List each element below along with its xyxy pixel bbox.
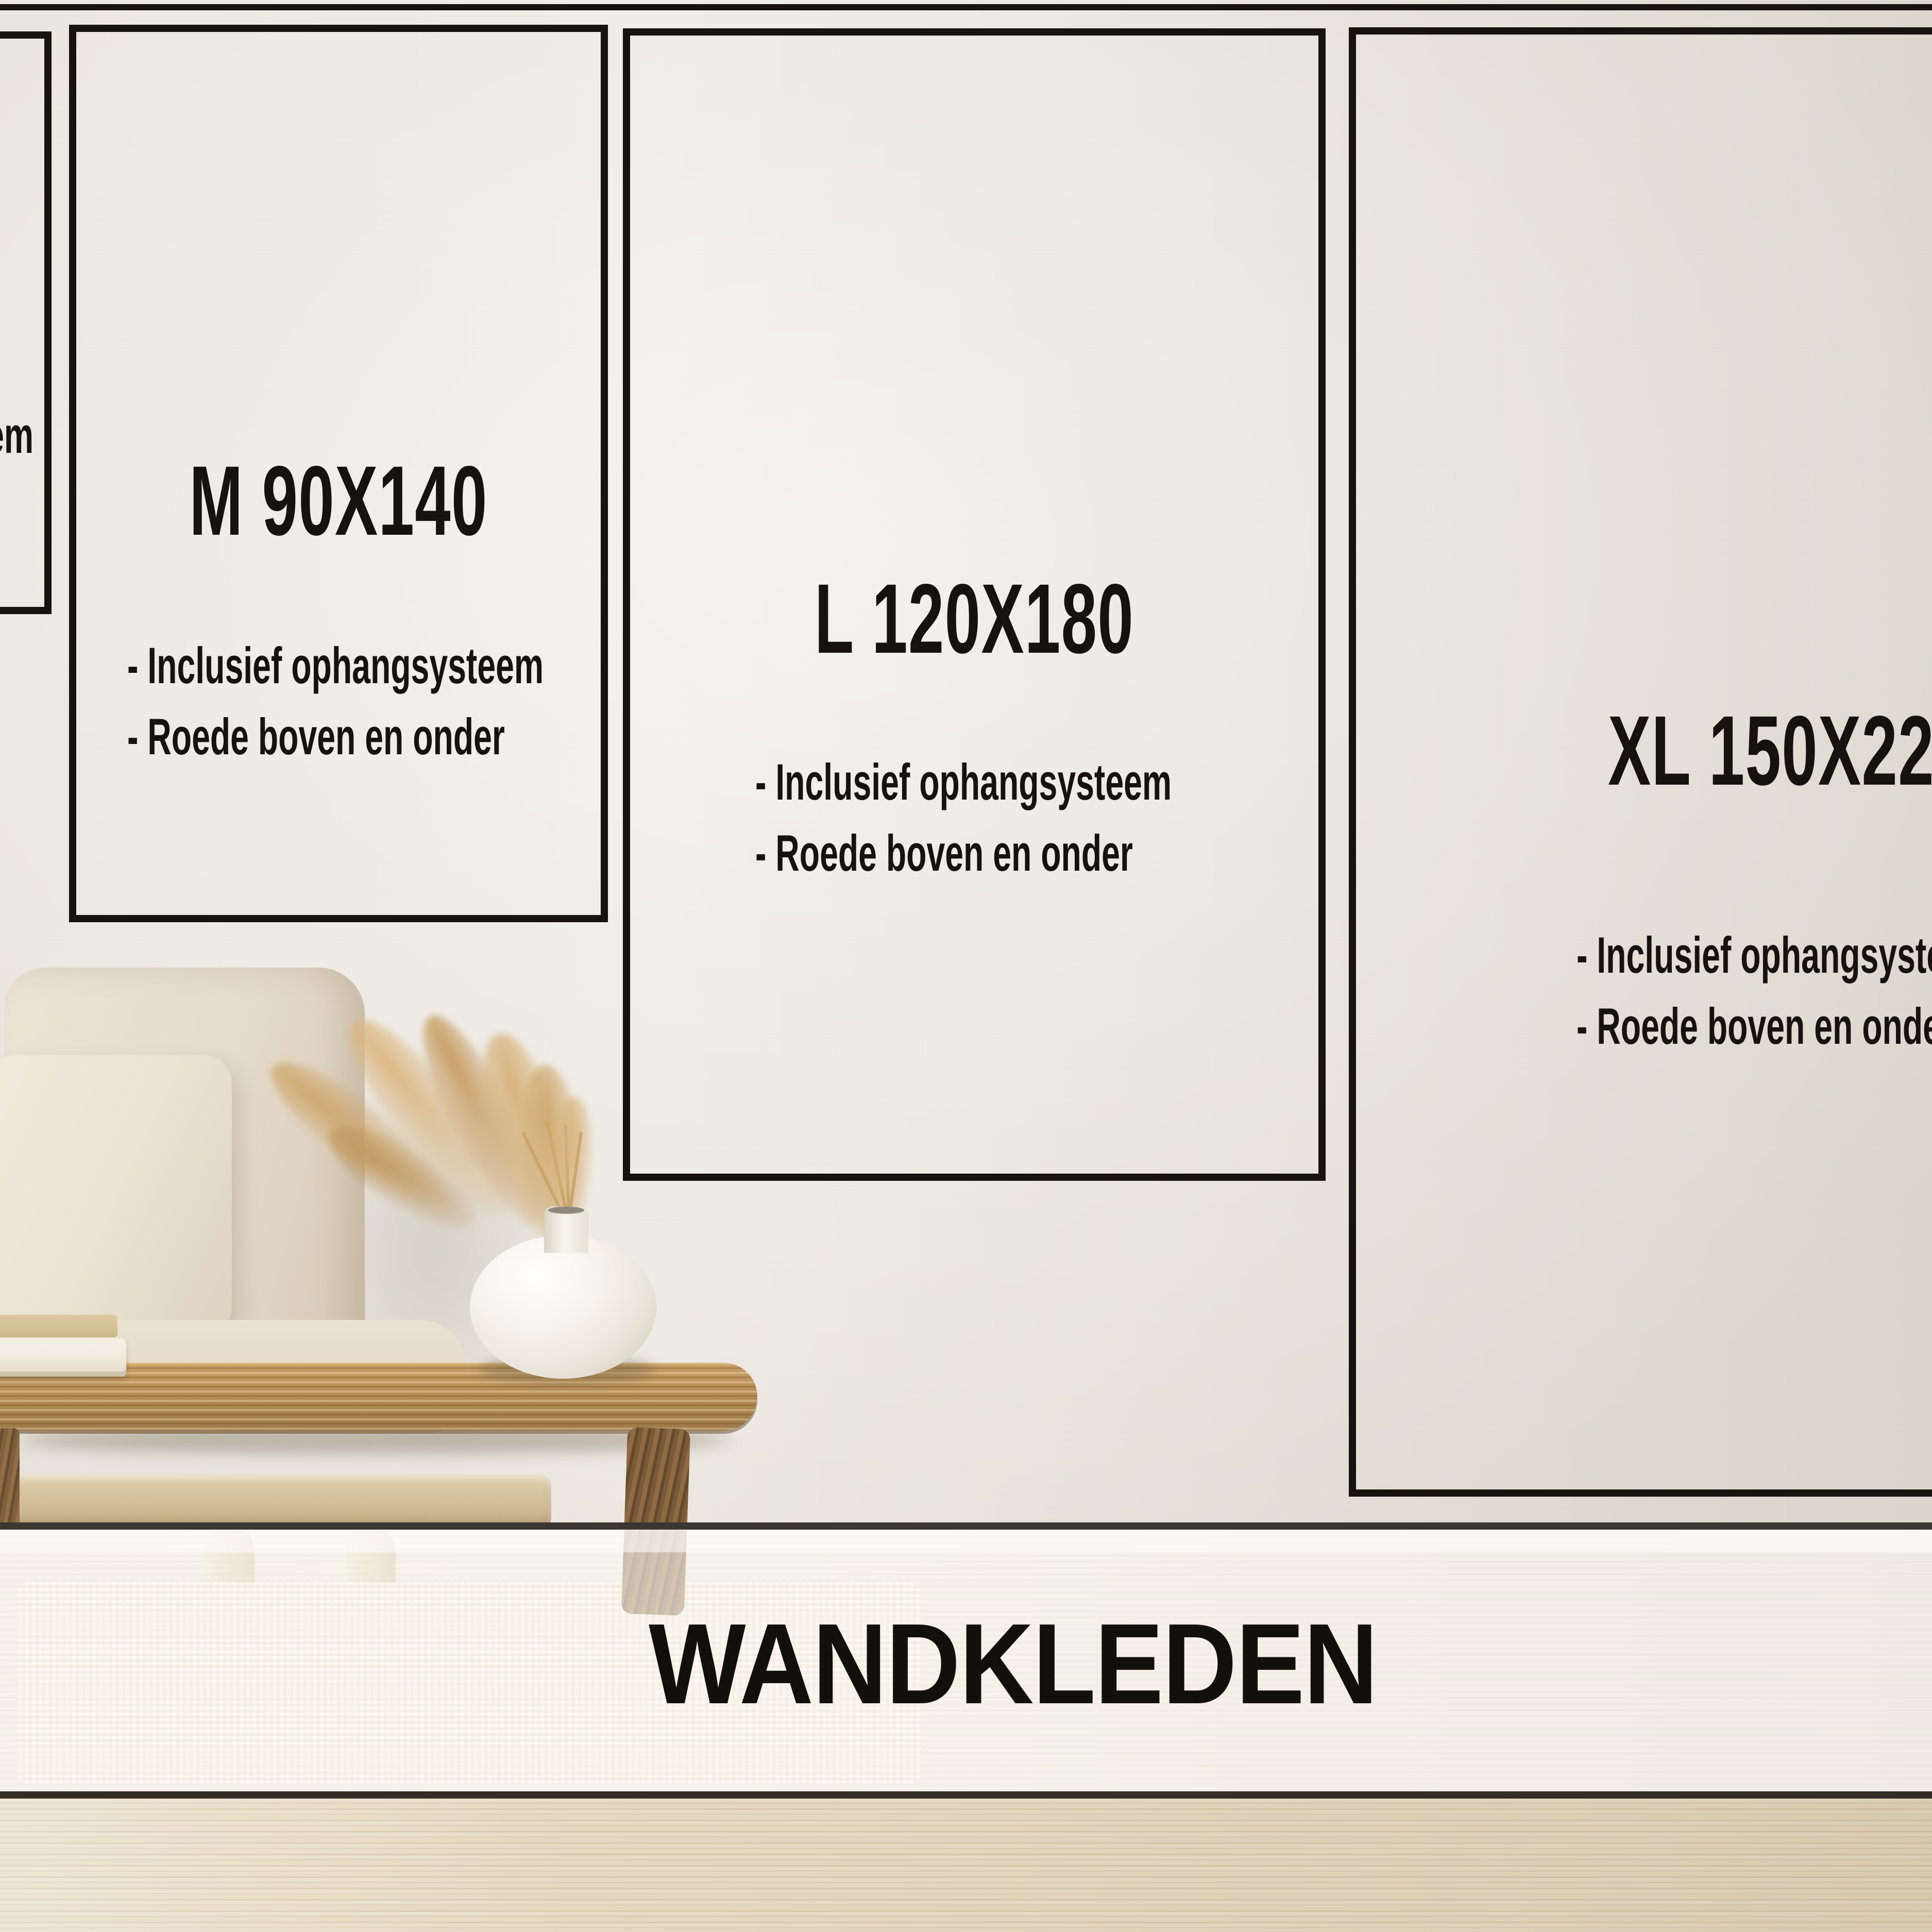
- size-box-s-partial: - Inclusief ophangsysteem - Roede boven …: [0, 31, 52, 614]
- size-box-bullets: - Inclusief ophangsysteem - Roede boven …: [1577, 920, 1932, 1062]
- bullet-inclusief: - Inclusief ophangsysteem: [1577, 920, 1932, 991]
- book: [0, 1315, 117, 1342]
- size-box-l: L 120X180 - Inclusief ophangsysteem - Ro…: [623, 28, 1326, 1181]
- size-box-bullets: - Inclusief ophangsysteem - Roede boven …: [755, 747, 1396, 889]
- bullet-roede: - Roede boven en onder: [755, 818, 1172, 889]
- coffee-table-leg: [0, 1428, 20, 1529]
- size-box-xl: XL 150X220 - Inclusief ophangsysteem - R…: [1349, 27, 1932, 1497]
- band-top-line: [0, 1522, 1932, 1530]
- top-border-rule: [0, 4, 1932, 10]
- book: [0, 1338, 126, 1377]
- poster-canvas: - Inclusief ophangsysteem - Roede boven …: [0, 0, 1932, 1932]
- size-label: XL 150X220: [1608, 701, 1932, 800]
- vase-mouth: [548, 1207, 584, 1214]
- poster-title: WANDKLEDEN: [144, 1607, 1883, 1721]
- bullet-inclusief: - Inclusief ophangsysteem: [755, 747, 1172, 818]
- bullet-roede: - Roede boven en onder: [127, 701, 544, 772]
- size-label: L 120X180: [751, 569, 1198, 668]
- size-box-m: M 90X140 - Inclusief ophangsysteem - Roe…: [69, 25, 608, 922]
- vase: [470, 1235, 656, 1379]
- baseboard-highlight: [0, 1530, 1932, 1552]
- bullet-inclusief: - Inclusief ophangsysteem: [127, 630, 544, 701]
- bullet-roede: - Roede boven en onder: [0, 471, 33, 542]
- wood-floor: [0, 1799, 1932, 1932]
- band-bottom-line: [0, 1791, 1932, 1799]
- couch-pillow: [0, 1055, 232, 1336]
- size-label: M 90X140: [168, 451, 509, 550]
- bullet-roede: - Roede boven en onder: [1577, 991, 1932, 1062]
- couch-wood-frame: [0, 1475, 551, 1529]
- bullet-inclusief: - Inclusief ophangsysteem: [0, 400, 33, 471]
